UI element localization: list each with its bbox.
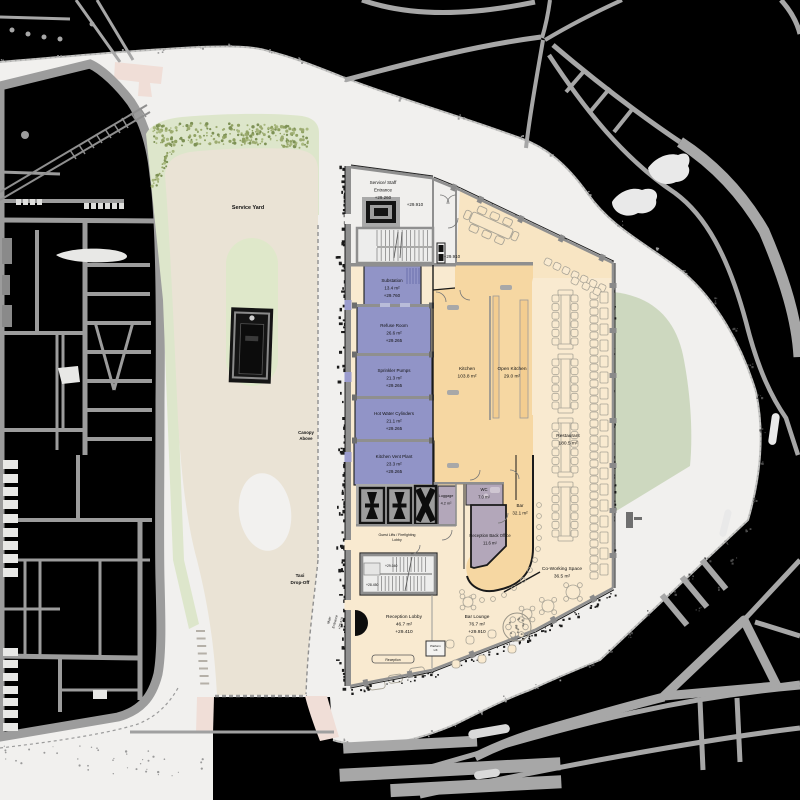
svg-text:Lift: Lift — [434, 648, 438, 652]
svg-text:21.1 m²: 21.1 m² — [386, 419, 402, 424]
svg-text:Reception: Reception — [385, 658, 400, 662]
svg-text:Hot Water Cylinders: Hot Water Cylinders — [374, 411, 415, 416]
svg-text:Restaurant: Restaurant — [556, 433, 580, 439]
svg-text:Reception Lobby: Reception Lobby — [386, 614, 423, 620]
svg-text:Luggage: Luggage — [439, 494, 454, 498]
svg-text:Service Yard: Service Yard — [232, 205, 264, 211]
svg-text:Kitchen Vent Plant: Kitchen Vent Plant — [376, 454, 414, 459]
svg-text:Lobby: Lobby — [392, 538, 402, 542]
svg-text:Above: Above — [299, 436, 313, 441]
svg-text:+29.265: +29.265 — [386, 383, 403, 388]
svg-text:4.2 m²: 4.2 m² — [441, 502, 452, 506]
svg-text:7.0 m²: 7.0 m² — [478, 495, 490, 500]
svg-text:+28.450: +28.450 — [366, 583, 378, 587]
svg-text:Sprinkler Pumps: Sprinkler Pumps — [377, 368, 411, 373]
svg-text:Reception Back Office: Reception Back Office — [469, 533, 511, 538]
svg-text:+29.910: +29.910 — [468, 629, 486, 635]
svg-text:29.0 m²: 29.0 m² — [504, 374, 521, 380]
svg-text:WC: WC — [481, 487, 488, 492]
svg-text:Kitchen: Kitchen — [459, 366, 475, 372]
svg-text:+29.910: +29.910 — [444, 254, 461, 259]
svg-text:26.6 m²: 26.6 m² — [386, 331, 402, 336]
svg-text:46.7 m²: 46.7 m² — [396, 622, 413, 628]
svg-text:Canopy: Canopy — [298, 430, 314, 435]
svg-text:Drop-Off: Drop-Off — [291, 580, 310, 585]
svg-text:Service/ Staff: Service/ Staff — [370, 180, 397, 185]
svg-text:36.5 m²: 36.5 m² — [554, 574, 571, 580]
svg-text:180.5 m²: 180.5 m² — [559, 441, 578, 447]
svg-text:+29.410: +29.410 — [395, 629, 413, 635]
svg-text:Entrance: Entrance — [374, 188, 393, 193]
svg-text:+29.265: +29.265 — [386, 426, 403, 431]
svg-text:Taxi: Taxi — [296, 573, 305, 578]
svg-text:Guest Lifts / Firefighting: Guest Lifts / Firefighting — [379, 533, 416, 537]
svg-text:+29.260: +29.260 — [375, 195, 392, 200]
svg-text:Refuse Room: Refuse Room — [380, 323, 408, 328]
svg-text:Open Kitchen: Open Kitchen — [497, 366, 526, 372]
svg-text:Co-Working Space: Co-Working Space — [542, 566, 583, 572]
svg-text:13.4 m²: 13.4 m² — [384, 286, 400, 291]
svg-text:+29.910: +29.910 — [407, 202, 424, 207]
svg-text:11.6 m²: 11.6 m² — [483, 541, 497, 546]
svg-text:Bar Lounge: Bar Lounge — [465, 614, 490, 620]
svg-text:Bar: Bar — [516, 503, 524, 508]
svg-text:103.8 m²: 103.8 m² — [458, 374, 477, 380]
svg-text:+29.040: +29.040 — [385, 564, 397, 568]
svg-text:+29.265: +29.265 — [386, 338, 403, 343]
svg-text:21.3 m²: 21.3 m² — [386, 376, 402, 381]
svg-text:76.7 m²: 76.7 m² — [469, 622, 486, 628]
svg-text:+29.760: +29.760 — [384, 293, 401, 298]
svg-text:23.3 m²: 23.3 m² — [386, 462, 402, 467]
svg-text:32.1 m²: 32.1 m² — [512, 511, 528, 516]
svg-text:+29.265: +29.265 — [386, 469, 403, 474]
svg-text:Substation: Substation — [381, 278, 403, 283]
